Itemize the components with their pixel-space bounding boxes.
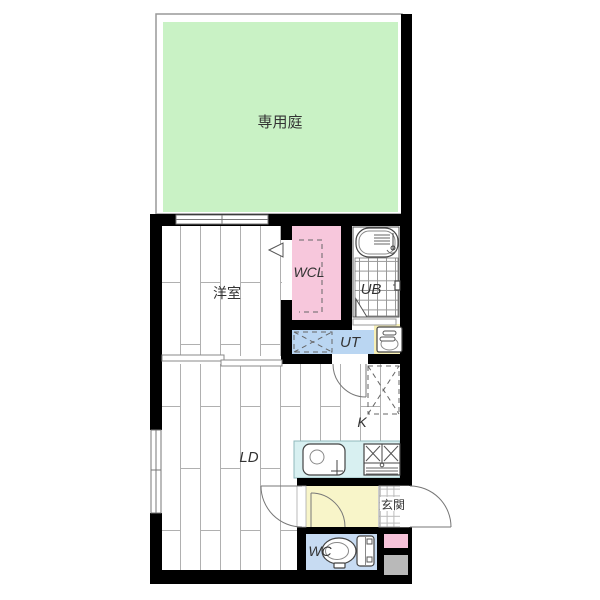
utility-label: UT bbox=[340, 334, 362, 351]
bedroom-sliding-door bbox=[162, 355, 224, 361]
hallway-floor bbox=[306, 486, 378, 527]
bath-threshold bbox=[353, 319, 396, 325]
gas-stove-icon bbox=[364, 444, 400, 475]
kitchen-sink-icon bbox=[303, 444, 345, 475]
bedroom-label: 洋室 bbox=[213, 285, 241, 301]
kitchen-label: K bbox=[357, 414, 367, 430]
washbasin-icon bbox=[377, 327, 402, 352]
meter-box-gray bbox=[384, 555, 408, 575]
wcl-label: WCL bbox=[293, 264, 324, 280]
meter-box-pink bbox=[384, 534, 408, 548]
floor-plan-canvas: 専用庭 洋室 WCL UB UT K LD 玄関 WC bbox=[0, 0, 600, 600]
living-door-gap bbox=[297, 486, 306, 527]
kitchen-floor bbox=[298, 364, 400, 441]
living-dining-floor bbox=[162, 364, 298, 570]
bath-label: UB bbox=[361, 281, 382, 298]
garden-label: 専用庭 bbox=[257, 114, 302, 131]
floor-plan: 専用庭 洋室 WCL UB UT K LD 玄関 WC bbox=[0, 0, 600, 600]
bathtub-icon bbox=[356, 228, 398, 257]
utility-floor bbox=[292, 330, 374, 354]
living-label: LD bbox=[239, 449, 258, 466]
entrance-label: 玄関 bbox=[381, 497, 405, 512]
bedroom-sliding-door-2 bbox=[221, 360, 282, 366]
toilet-label: WC bbox=[308, 543, 332, 559]
